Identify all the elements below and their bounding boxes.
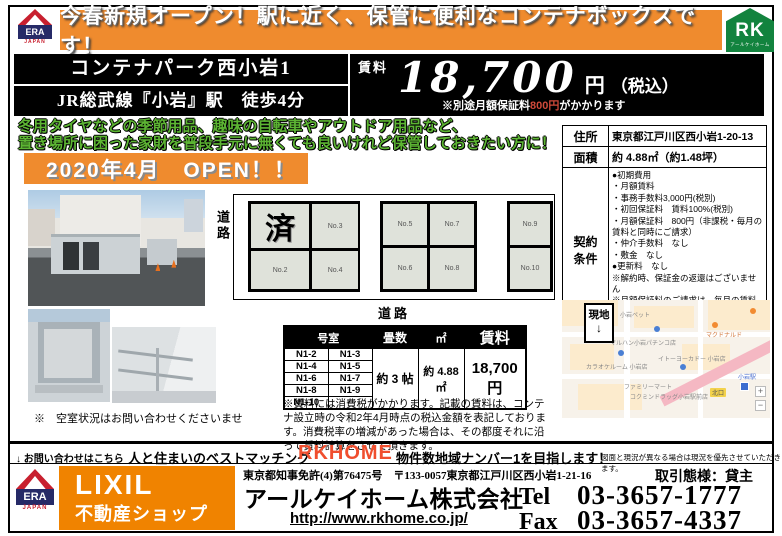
road-label-left: 道路 xyxy=(213,210,232,242)
unit-6: No.6 xyxy=(383,248,427,289)
room-cell: N1-7 xyxy=(328,373,372,385)
lixil-logo-text: LIXIL xyxy=(75,470,235,500)
map-pin-icon xyxy=(750,308,756,314)
flyer-page: ERA JAPAN 今春新規オープン！駅に近く、保管に便利なコンテナボックスです… xyxy=(0,0,782,536)
era-roof-icon xyxy=(18,9,52,25)
unit-10: No.10 xyxy=(510,248,550,289)
property-name: コンテナパーク西小岩1 xyxy=(14,54,348,84)
era-logo-subtext: JAPAN xyxy=(14,39,56,45)
photo-container-door xyxy=(83,242,99,270)
photo-container-interior xyxy=(112,327,216,403)
terms-line: ●更新料 なし xyxy=(612,261,763,272)
room-cell: N1-8 xyxy=(284,385,328,397)
rkhome-brand: RKHOME xyxy=(298,442,393,465)
col-header-tatami: 畳数 xyxy=(372,326,418,349)
company-slogan: 人と住まいのベストマッチング xyxy=(128,448,310,467)
rent-tax-note: （税込） xyxy=(611,72,679,97)
rk-logo-text: RK xyxy=(726,20,774,42)
map-station-icon xyxy=(740,382,749,391)
map-pin-icon xyxy=(654,326,660,332)
era-logo-bottom: ERA JAPAN xyxy=(13,469,57,529)
terms-line: ・仲介手数料 なし xyxy=(612,238,763,249)
unit-7: No.7 xyxy=(430,204,474,245)
price-block: 賃料 18,700 円 （税込） ※別途月額保証料800円がかかります xyxy=(350,54,764,116)
map-zoom-in-button[interactable]: + xyxy=(755,386,766,397)
table-row: N1-2 N1-3 約 3 帖 約 4.88㎡ 18,700円 xyxy=(284,349,526,361)
company-url-link[interactable]: http://www.rkhome.co.jp/ xyxy=(290,510,468,527)
catch-line-2: 置き場所に困った家財を普段手元に無くても良いけれど保管しておきたい方に！ xyxy=(18,135,578,152)
note-prefix: ※別途月額保証料 xyxy=(442,100,530,112)
open-date: 2020年4月 OPEN！！ xyxy=(46,154,297,184)
room-cell: N1-4 xyxy=(284,361,328,373)
terms-line: ・月額賃料 xyxy=(612,181,763,192)
era-logo-text: ERA xyxy=(18,25,52,39)
area-label: 面積 xyxy=(563,147,609,168)
era-roof-icon xyxy=(16,469,54,489)
photo-container-far xyxy=(147,239,177,266)
unit-2: No.2 xyxy=(251,251,309,289)
container-block-2: No.5 No.7 No.6 No.8 xyxy=(380,201,477,292)
area-value: 約 4.88㎡（約1.48坪） xyxy=(609,147,767,168)
fax-label: Fax xyxy=(519,509,577,536)
map-pin-icon xyxy=(712,322,718,328)
map-label: マクドナルド xyxy=(706,330,742,339)
note-suffix: がかかります xyxy=(559,100,625,112)
era-logo: ERA JAPAN xyxy=(14,9,56,51)
catch-line-1: 冬用タイヤなどの季節用品、趣味の自転車やアウトドア用品など、 xyxy=(18,118,578,135)
company-goal: 物件数地域ナンバー1を目指します！ xyxy=(396,448,611,467)
photo-container-door xyxy=(63,242,79,270)
unit-1-sold: 済 xyxy=(251,204,309,248)
rent-label: 賃料 xyxy=(358,57,388,76)
terms-line: ・初回保証料 賃料100%(税別) xyxy=(612,204,763,215)
station-access: JR総武線『小岩』駅 徒歩4分 xyxy=(14,86,348,116)
unit-9: No.9 xyxy=(510,204,550,245)
rent-amount-row: 18,700 円 （税込） xyxy=(398,54,679,102)
fax-number: 03-3657-4337 xyxy=(577,505,742,536)
site-marker: 現地 ↓ xyxy=(584,303,614,343)
lixil-shop-badge: LIXIL 不動産ショップ xyxy=(59,466,235,530)
map-pin-icon xyxy=(680,364,686,370)
map-label: マルハン小岩パチンコ店 xyxy=(610,338,676,347)
terms-line: ●初期費用 xyxy=(612,170,763,181)
era-logo-text: ERA xyxy=(16,489,54,505)
terms-line: ・敷金 なし xyxy=(612,250,763,261)
rent-amount: 18,700 xyxy=(398,54,577,102)
terms-line: ・事務手数料3,000円(税別) xyxy=(612,193,763,204)
lixil-shop-label: 不動産ショップ xyxy=(75,500,235,526)
rent-unit: 円 xyxy=(585,69,605,98)
map-label: ファミリーマート xyxy=(624,382,672,391)
unit-8: No.8 xyxy=(430,248,474,289)
site-marker-label: 現地 xyxy=(586,307,612,322)
era-logo-subtext: JAPAN xyxy=(13,505,57,511)
room-cell: N1-2 xyxy=(284,349,328,361)
room-cell: N1-6 xyxy=(284,373,328,385)
photo-container-open xyxy=(28,309,110,402)
terms-line: ※解約時、保証金の返還はございません xyxy=(612,273,763,296)
col-header-sqm: ㎡ xyxy=(418,326,464,349)
map-north-exit-badge: 北口 xyxy=(710,388,726,397)
footer-divider-thin xyxy=(8,463,774,464)
col-header-rent: 賃料 xyxy=(464,326,526,349)
table-row: 住所 東京都江戸川区西小岩1-20-13 xyxy=(563,126,767,147)
room-cell: N1-9 xyxy=(328,385,372,397)
map-label: 小岩駅 xyxy=(738,372,756,381)
photo-floor xyxy=(35,385,104,392)
property-title-block: コンテナパーク西小岩1 JR総武線『小岩』駅 徒歩4分 xyxy=(14,54,348,116)
unit-4: No.4 xyxy=(312,251,358,289)
address-value: 東京都江戸川区西小岩1-20-13 xyxy=(609,126,767,147)
address-label: 住所 xyxy=(563,126,609,147)
map-label: カラオケルーム 小岩店 xyxy=(586,362,648,371)
unit-3: No.3 xyxy=(312,204,358,248)
banner-text: 今春新規オープン！駅に近く、保管に便利なコンテナボックスです！ xyxy=(60,0,722,60)
note-amount: 800円 xyxy=(530,100,559,112)
map-zoom-out-button[interactable]: − xyxy=(755,400,766,411)
vacancy-caption: ※ 空室状況はお問い合わせくださいませ xyxy=(34,410,243,426)
map-pin-icon xyxy=(618,350,624,356)
photo-exterior xyxy=(28,190,205,306)
photo-door-interior xyxy=(44,329,92,377)
unit-5: No.5 xyxy=(383,204,427,245)
down-arrow-icon: ↓ xyxy=(586,322,612,334)
table-row: 面積 約 4.88㎡（約1.48坪） xyxy=(563,147,767,168)
room-cell: N1-3 xyxy=(328,349,372,361)
site-plan: 済 No.3 No.2 No.4 No.5 No.7 No.6 No.8 No.… xyxy=(233,194,555,300)
open-banner: 2020年4月 OPEN！！ xyxy=(24,153,308,184)
map-label: コクミンドラッグ小岩駅前店 xyxy=(630,392,708,401)
container-block-3: No.9 No.10 xyxy=(507,201,553,292)
rk-logo-subtext: アールケイホーム xyxy=(726,42,774,48)
room-cell: N1-5 xyxy=(328,361,372,373)
map-label: 小岩ペット xyxy=(620,310,650,319)
guarantee-fee-note: ※別途月額保証料800円がかかります xyxy=(442,97,625,113)
photo-floor xyxy=(112,391,216,403)
map-label: イトーヨーカドー 小岩店 xyxy=(658,354,726,363)
company-name: アールケイホーム株式会社 xyxy=(244,480,523,514)
container-block-1: 済 No.3 No.2 No.4 xyxy=(248,201,360,292)
photo-shelf-post xyxy=(156,348,159,392)
catch-copy: 冬用タイヤなどの季節用品、趣味の自転車やアウトドア用品など、 置き場所に困った家… xyxy=(18,118,578,152)
photo-tower xyxy=(184,199,203,231)
road-label-bottom: 道路 xyxy=(233,303,555,322)
top-banner: 今春新規オープン！駅に近く、保管に便利なコンテナボックスです！ xyxy=(60,10,722,50)
fax-row: Fax 03-3657-4337 xyxy=(519,505,742,536)
col-header-room: 号室 xyxy=(284,326,372,349)
terms-line: ・月額保証料 800円（非課税・毎月の賃料と同時にご請求） xyxy=(612,216,763,239)
location-map[interactable]: 小岩ペット マルハン小岩パチンコ店 マクドナルド カラオケルーム 小岩店 イトー… xyxy=(562,300,770,418)
